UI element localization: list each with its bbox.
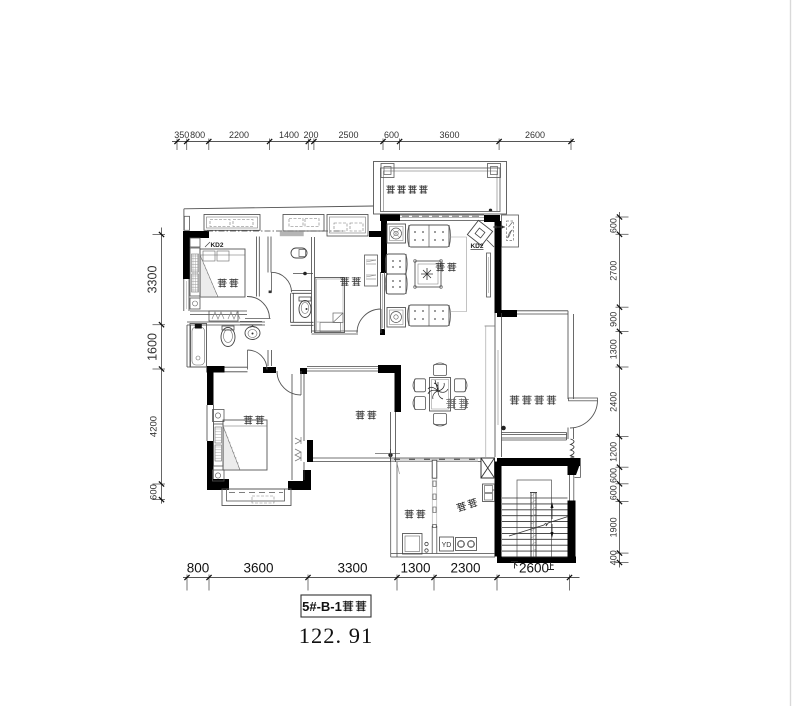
svg-text:600: 600 — [149, 484, 160, 500]
svg-text:4200: 4200 — [149, 416, 160, 437]
svg-text:600: 600 — [609, 468, 619, 483]
svg-text:600: 600 — [609, 218, 619, 233]
svg-text:KD2: KD2 — [210, 242, 223, 249]
svg-text:800: 800 — [187, 561, 210, 576]
svg-text:3300: 3300 — [337, 561, 367, 576]
svg-text:2300: 2300 — [450, 561, 480, 576]
svg-text:600: 600 — [384, 130, 399, 140]
svg-text:900: 900 — [609, 312, 619, 327]
svg-text:1200: 1200 — [609, 442, 619, 462]
svg-text:2500: 2500 — [338, 130, 358, 140]
svg-text:5#-B-1: 5#-B-1 — [302, 599, 342, 614]
svg-text:400: 400 — [609, 550, 619, 565]
svg-text:3600: 3600 — [439, 130, 459, 140]
svg-text:1600: 1600 — [146, 333, 160, 361]
svg-text:2700: 2700 — [609, 261, 619, 281]
svg-text:122. 91: 122. 91 — [299, 623, 374, 648]
svg-text:200: 200 — [303, 130, 318, 140]
svg-text:350: 350 — [174, 130, 189, 140]
svg-text:3600: 3600 — [243, 561, 273, 576]
svg-text:600: 600 — [609, 485, 619, 500]
svg-text:800: 800 — [190, 130, 205, 140]
svg-text:1900: 1900 — [609, 517, 619, 537]
svg-text:3300: 3300 — [146, 266, 160, 294]
svg-text:1400: 1400 — [279, 130, 299, 140]
svg-text:2400: 2400 — [609, 392, 619, 412]
svg-text:2200: 2200 — [229, 130, 249, 140]
svg-text:1300: 1300 — [609, 339, 619, 359]
svg-text:2600: 2600 — [525, 130, 545, 140]
svg-text:YD: YD — [442, 542, 452, 549]
svg-text:KD2: KD2 — [470, 243, 483, 250]
svg-text:1300: 1300 — [400, 561, 430, 576]
